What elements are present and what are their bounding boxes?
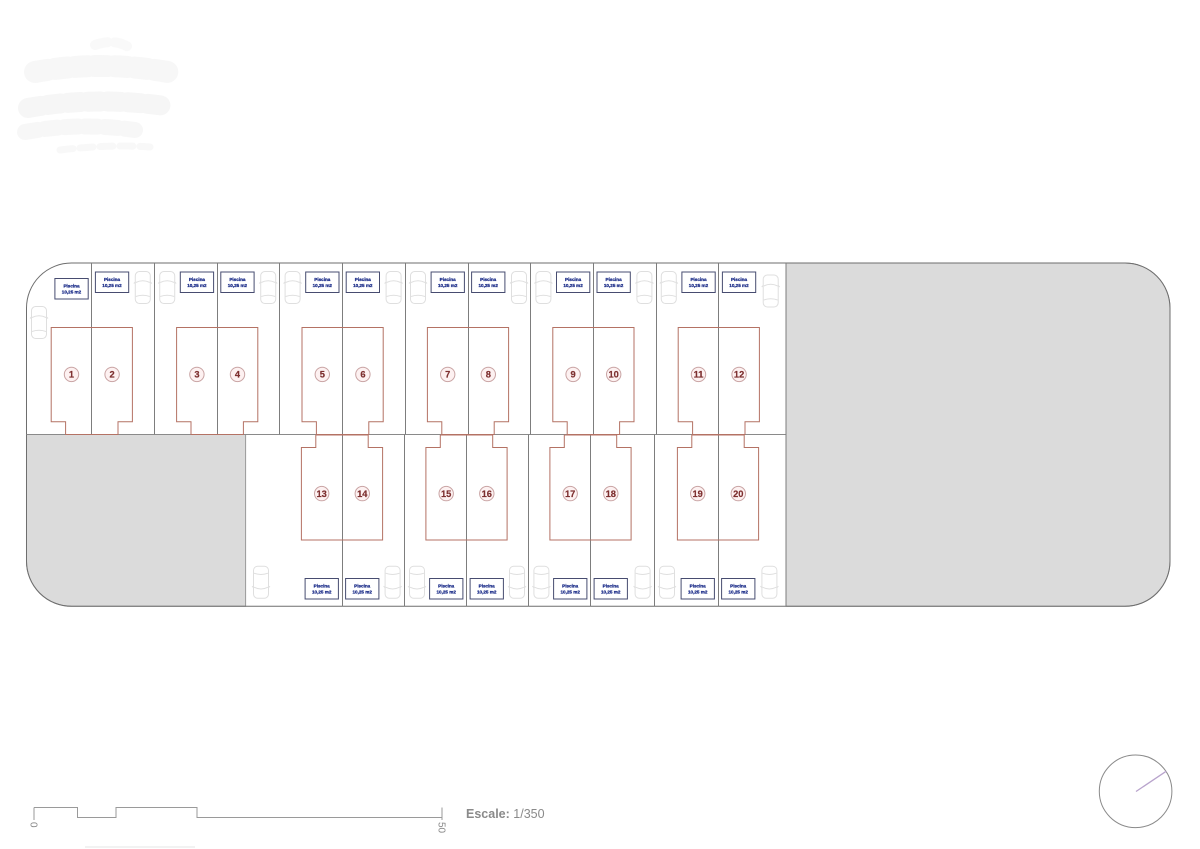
svg-text:Piscina: Piscina xyxy=(690,583,707,588)
svg-text:10,25 m2: 10,25 m2 xyxy=(102,283,122,288)
svg-text:10,25 m2: 10,25 m2 xyxy=(436,590,456,595)
svg-text:Piscina: Piscina xyxy=(104,277,121,282)
svg-text:18: 18 xyxy=(606,489,616,499)
svg-text:Piscina: Piscina xyxy=(229,277,246,282)
svg-text:6: 6 xyxy=(360,370,365,380)
svg-text:11: 11 xyxy=(694,370,704,380)
svg-text:10,25 m2: 10,25 m2 xyxy=(477,590,497,595)
svg-text:Piscina: Piscina xyxy=(480,277,497,282)
svg-text:12: 12 xyxy=(734,370,744,380)
svg-text:13: 13 xyxy=(317,489,327,499)
svg-text:Piscina: Piscina xyxy=(562,583,579,588)
svg-text:10,25 m2: 10,25 m2 xyxy=(353,283,373,288)
svg-text:15: 15 xyxy=(441,489,451,499)
svg-text:Piscina: Piscina xyxy=(565,277,582,282)
svg-text:10,25 m2: 10,25 m2 xyxy=(313,283,333,288)
svg-text:10,25 m2: 10,25 m2 xyxy=(601,590,621,595)
svg-text:10,25 m2: 10,25 m2 xyxy=(438,283,458,288)
svg-text:Piscina: Piscina xyxy=(440,277,457,282)
svg-text:2: 2 xyxy=(110,370,115,380)
svg-text:14: 14 xyxy=(357,489,368,499)
svg-text:5: 5 xyxy=(320,370,325,380)
svg-text:Piscina: Piscina xyxy=(479,583,496,588)
svg-text:9: 9 xyxy=(571,370,576,380)
svg-text:19: 19 xyxy=(693,489,703,499)
svg-text:10,25 m2: 10,25 m2 xyxy=(352,590,372,595)
svg-text:16: 16 xyxy=(482,489,492,499)
svg-text:3: 3 xyxy=(194,370,199,380)
svg-text:Piscina: Piscina xyxy=(606,277,623,282)
svg-text:Escale: 1/350: Escale: 1/350 xyxy=(466,807,545,821)
svg-text:Piscina: Piscina xyxy=(314,277,331,282)
svg-text:10,25 m2: 10,25 m2 xyxy=(478,283,498,288)
svg-text:Piscina: Piscina xyxy=(690,277,707,282)
svg-text:20: 20 xyxy=(733,489,743,499)
svg-text:Piscina: Piscina xyxy=(189,277,206,282)
svg-text:Piscina: Piscina xyxy=(355,277,372,282)
svg-text:Piscina: Piscina xyxy=(314,583,331,588)
svg-text:4: 4 xyxy=(235,370,241,380)
svg-text:10,25 m2: 10,25 m2 xyxy=(228,283,248,288)
svg-text:10,25 m2: 10,25 m2 xyxy=(312,590,332,595)
svg-text:10: 10 xyxy=(609,370,619,380)
svg-text:Piscina: Piscina xyxy=(63,283,80,288)
svg-text:Piscina: Piscina xyxy=(603,583,620,588)
svg-text:10,25 m2: 10,25 m2 xyxy=(728,590,748,595)
svg-text:8: 8 xyxy=(486,370,491,380)
svg-text:10,25 m2: 10,25 m2 xyxy=(688,590,708,595)
svg-text:Piscina: Piscina xyxy=(731,277,748,282)
svg-text:7: 7 xyxy=(445,370,450,380)
svg-text:10,25 m2: 10,25 m2 xyxy=(689,283,709,288)
svg-text:10,25 m2: 10,25 m2 xyxy=(729,283,749,288)
svg-text:10,25 m2: 10,25 m2 xyxy=(604,283,624,288)
svg-text:0: 0 xyxy=(28,822,39,828)
svg-text:Piscina: Piscina xyxy=(730,583,747,588)
svg-text:10,25 m2: 10,25 m2 xyxy=(187,283,207,288)
svg-text:Piscina: Piscina xyxy=(438,583,455,588)
svg-text:10,25 m2: 10,25 m2 xyxy=(560,590,580,595)
svg-text:50: 50 xyxy=(436,822,447,834)
svg-text:10,25 m2: 10,25 m2 xyxy=(62,290,82,295)
svg-text:Piscina: Piscina xyxy=(354,583,371,588)
svg-text:1: 1 xyxy=(69,370,74,380)
svg-text:10,25 m2: 10,25 m2 xyxy=(563,283,583,288)
svg-text:17: 17 xyxy=(565,489,575,499)
